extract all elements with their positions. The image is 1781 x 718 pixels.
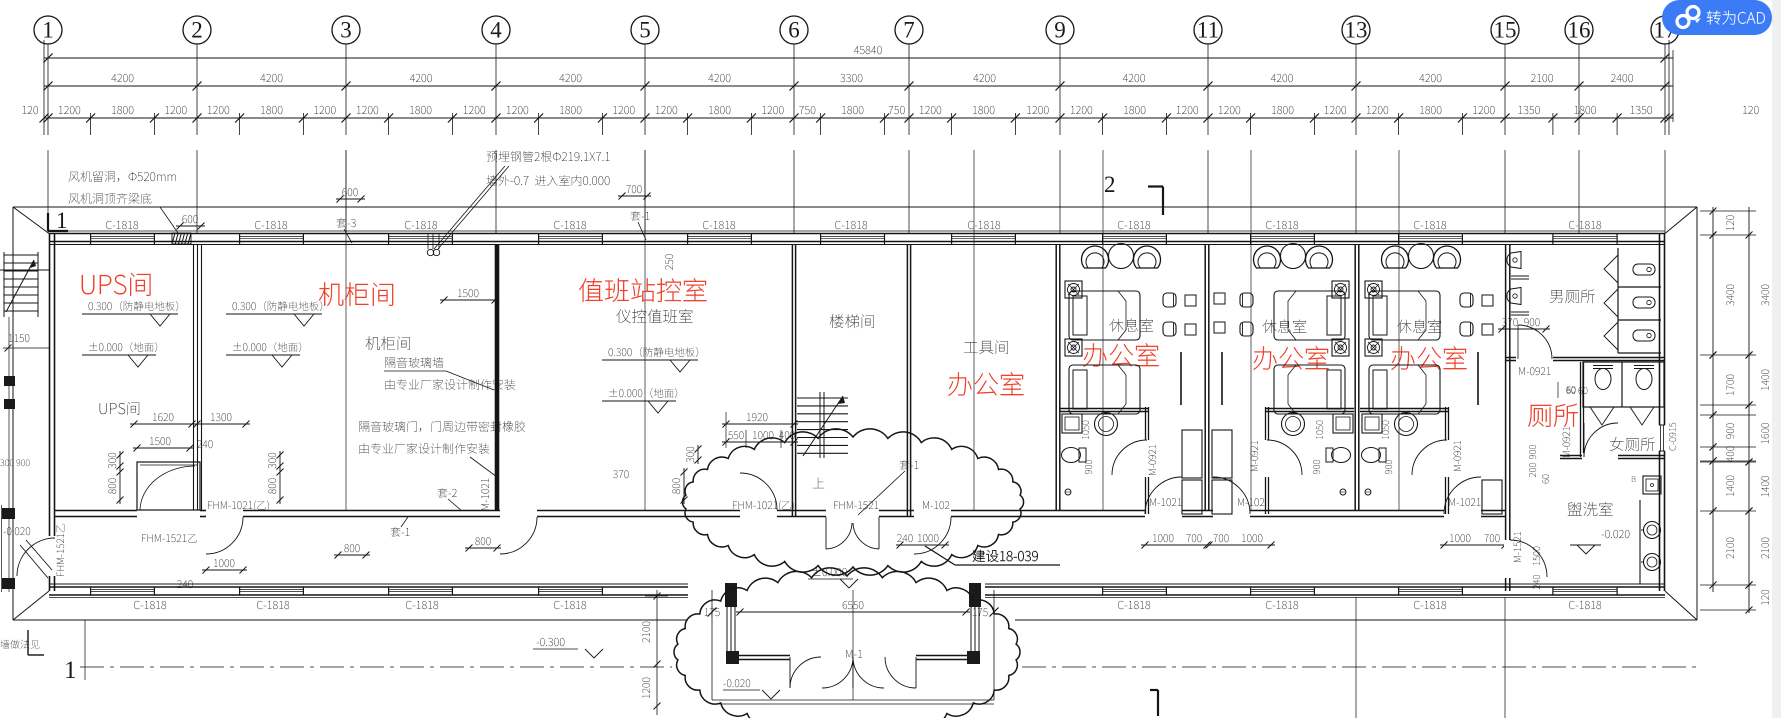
svg-text:16: 16 — [1568, 18, 1591, 43]
svg-text:13: 13 — [1345, 18, 1368, 43]
svg-text:9: 9 — [1054, 18, 1066, 43]
svg-text:11: 11 — [1197, 18, 1219, 43]
svg-text:4: 4 — [490, 18, 502, 43]
svg-text:2: 2 — [1104, 172, 1116, 197]
svg-text:7: 7 — [903, 18, 915, 43]
svg-text:2: 2 — [191, 18, 203, 43]
svg-text:3: 3 — [340, 18, 352, 43]
svg-text:15: 15 — [1494, 18, 1517, 43]
svg-text:1: 1 — [56, 208, 68, 233]
svg-text:1: 1 — [42, 18, 54, 43]
svg-text:5: 5 — [639, 18, 651, 43]
svg-text:1: 1 — [64, 657, 77, 684]
svg-text:6: 6 — [788, 18, 800, 43]
